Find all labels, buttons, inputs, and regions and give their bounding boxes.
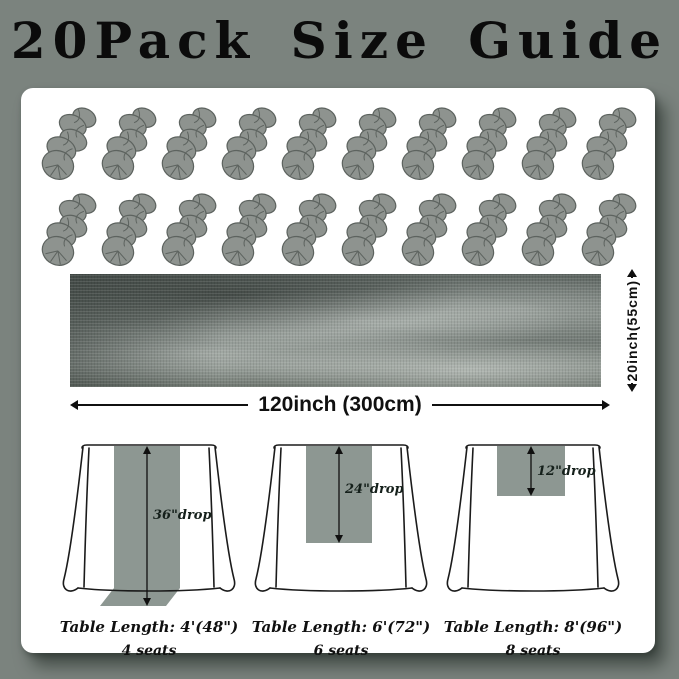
- skein-row-2: [21, 186, 655, 270]
- arrow-down-icon: [627, 384, 637, 392]
- yarn-skein-icon: [41, 100, 95, 184]
- yarn-skein-icon: [341, 186, 395, 270]
- yarn-skein-icon: [161, 100, 215, 184]
- yarn-skein-icon: [221, 100, 275, 184]
- yarn-skein-icon: [401, 186, 455, 270]
- runner-section: 20inch(55cm) 120inch (300cm): [70, 274, 601, 417]
- table-figure-4ft: 36"drop Table Length: 4'(48") 4 seats: [53, 437, 245, 659]
- dimension-line: [432, 404, 602, 406]
- yarn-skein-icon: [221, 186, 275, 270]
- arrow-right-icon: [602, 400, 610, 410]
- table-diagrams: 36"drop Table Length: 4'(48") 4 seats: [21, 437, 655, 659]
- table-diagram-4ft: 36"drop: [53, 437, 245, 609]
- drop-label: 24"drop: [344, 482, 404, 497]
- dimension-line: [631, 277, 633, 278]
- table-diagram-6ft: 24"drop: [245, 437, 437, 609]
- yarn-skein-icon: [581, 186, 635, 270]
- runner-width-label: 20inch(55cm): [624, 280, 640, 381]
- runner-length-label: 120inch (300cm): [258, 393, 421, 417]
- table-diagram-8ft: 12"drop: [437, 437, 629, 609]
- table-figure-8ft: 12"drop Table Length: 8'(96") 8 seats: [437, 437, 629, 659]
- yarn-skein-icon: [401, 100, 455, 184]
- content-panel: 20inch(55cm) 120inch (300cm): [21, 88, 655, 653]
- table-length-caption: Table Length: 6'(72"): [245, 618, 437, 636]
- arrow-left-icon: [70, 400, 78, 410]
- yarn-skein-icon: [281, 100, 335, 184]
- table-seats-caption: 8 seats: [437, 643, 629, 659]
- yarn-skein-icon: [521, 186, 575, 270]
- yarn-skein-icon: [341, 100, 395, 184]
- skein-row-1: [21, 100, 655, 184]
- drop-label: 36"drop: [153, 508, 212, 523]
- drop-label: 12"drop: [537, 464, 596, 479]
- yarn-skein-icon: [281, 186, 335, 270]
- runner-length-dimension: 120inch (300cm): [70, 393, 610, 417]
- yarn-skein-icon: [41, 186, 95, 270]
- page-title: 20Pack Size Guide: [0, 10, 679, 72]
- table-length-caption: Table Length: 4'(48"): [53, 618, 245, 636]
- dimension-line: [78, 404, 248, 406]
- runner-width-dimension: 20inch(55cm): [615, 269, 649, 392]
- table-seats-caption: 6 seats: [245, 643, 437, 659]
- arrow-up-icon: [627, 269, 637, 277]
- yarn-skein-icon: [521, 100, 575, 184]
- yarn-skein-icon: [581, 100, 635, 184]
- table-seats-caption: 4 seats: [53, 643, 245, 659]
- yarn-skein-icon: [461, 186, 515, 270]
- table-runner-photo: [70, 274, 601, 387]
- yarn-skein-icon: [161, 186, 215, 270]
- table-figure-6ft: 24"drop Table Length: 6'(72") 6 seats: [245, 437, 437, 659]
- table-length-caption: Table Length: 8'(96"): [437, 618, 629, 636]
- yarn-skein-icon: [101, 186, 155, 270]
- yarn-skein-icon: [461, 100, 515, 184]
- yarn-skein-icon: [101, 100, 155, 184]
